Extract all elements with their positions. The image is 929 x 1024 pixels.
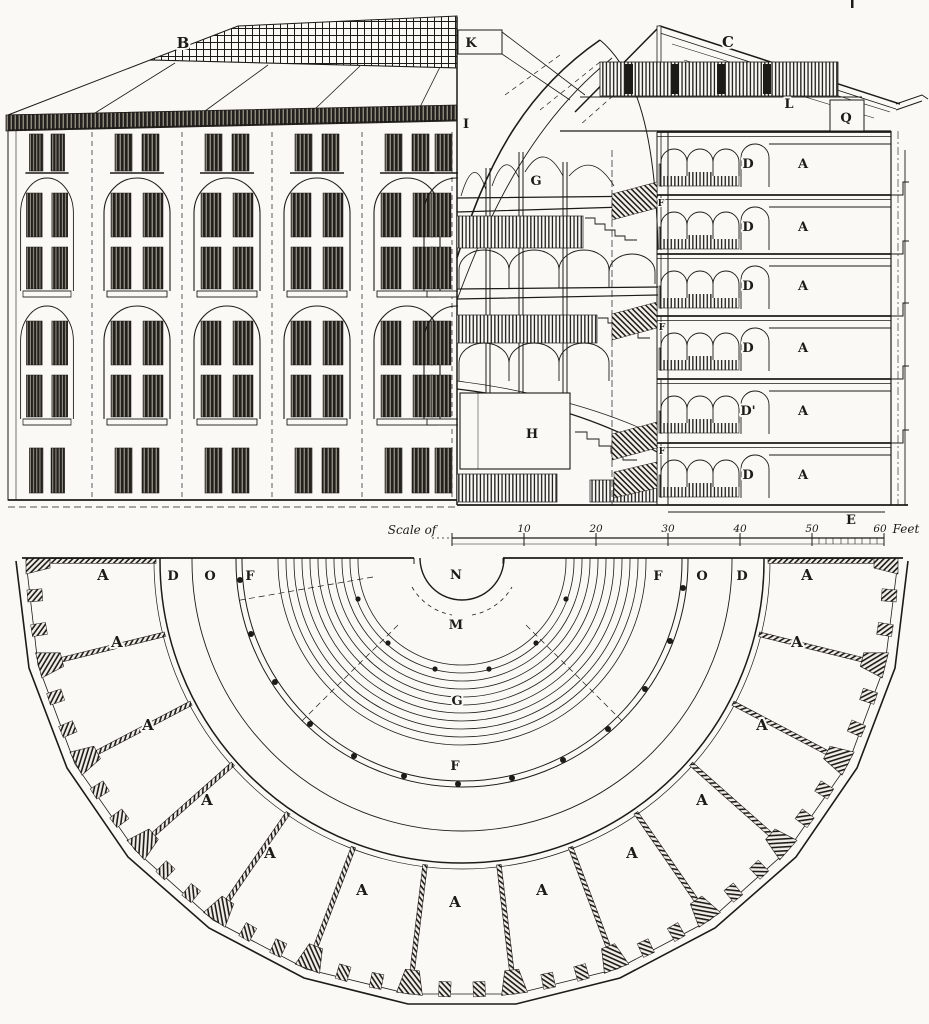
plan-partition — [727, 692, 854, 775]
window-pier — [473, 981, 486, 996]
window-pier — [369, 972, 384, 989]
window-pier — [877, 622, 894, 636]
label-q: Q — [840, 111, 851, 126]
elevation-view — [6, 16, 490, 507]
wall-step — [891, 303, 909, 316]
scale-tick: 40 — [732, 523, 747, 535]
window-pier — [815, 781, 834, 799]
cell-row-a: A — [797, 157, 809, 172]
scale-tick: 30 — [661, 523, 675, 535]
window-pier — [47, 689, 65, 705]
cell-row-d: D — [742, 220, 753, 235]
plan-partition — [625, 805, 720, 927]
cell-row-d: D — [742, 279, 753, 294]
label-l: L — [784, 97, 793, 112]
eave-flick — [896, 95, 928, 110]
label-k: K — [465, 36, 477, 51]
stair-flights — [612, 182, 657, 498]
bay-separators — [92, 132, 452, 498]
wall-step — [891, 366, 909, 379]
cell-row-d: D' — [740, 404, 755, 419]
plan-right-o: O — [696, 569, 707, 584]
label-m: M — [449, 618, 463, 633]
cell-row-d: D — [742, 341, 753, 356]
cell-row-a: A — [797, 279, 809, 294]
plan-cell-a: A — [800, 566, 813, 584]
scale-tick: 20 — [588, 523, 603, 535]
label-f-plan: F — [450, 759, 460, 774]
window-pier — [750, 860, 769, 879]
plan-partition — [36, 622, 168, 678]
plan-cell-a: A — [535, 881, 548, 899]
cell-level — [657, 379, 891, 434]
plan-partition — [558, 843, 628, 974]
cell-level — [657, 443, 891, 498]
stair-label-f: F — [658, 198, 665, 209]
window-pier — [335, 964, 351, 982]
plan-partition — [756, 622, 888, 678]
window-bay — [104, 134, 170, 493]
plan-cell-a: A — [695, 791, 708, 809]
window-pier — [239, 923, 257, 942]
plan-partition — [486, 863, 527, 995]
cell-row-a: A — [797, 220, 809, 235]
window-bay — [21, 134, 74, 493]
label-n: N — [450, 568, 462, 583]
top-line-jogs — [414, 558, 503, 564]
window-pier — [27, 589, 43, 602]
plan-cell-a: A — [790, 633, 803, 651]
page-mark — [851, 0, 854, 8]
facade-outline — [8, 120, 457, 500]
window-bay — [374, 134, 440, 493]
cell-level — [657, 132, 891, 187]
window-pier — [439, 981, 452, 996]
window-bay — [194, 134, 260, 493]
plan-cell-a: A — [355, 881, 368, 899]
scale-tick: 50 — [805, 523, 819, 535]
window-pier — [724, 883, 743, 902]
window-pier — [795, 809, 814, 828]
plan-cell-a: A — [141, 716, 154, 734]
plan-partition — [397, 863, 438, 995]
cell-level — [657, 316, 891, 371]
wall-step — [891, 182, 909, 195]
window-pier — [156, 861, 175, 880]
window-pier — [637, 939, 654, 958]
window-pier — [860, 688, 878, 704]
window-pier — [182, 883, 201, 902]
panopticon-drawing: B K C I L Q G H E D A D A D A D A D' A D… — [0, 0, 929, 1024]
chapel-room — [460, 393, 570, 469]
window-pier — [667, 923, 685, 942]
scale-caption: Scale of — [388, 523, 439, 537]
wall-step — [891, 241, 909, 254]
walkway-column-dots — [237, 577, 686, 787]
plan-cell-a: A — [110, 633, 123, 651]
plan-left-d: D — [167, 569, 178, 584]
plan-partition — [127, 754, 242, 860]
label-g-plan: G — [451, 694, 462, 709]
plan-partition — [70, 692, 197, 775]
plan-cell-a: A — [755, 716, 768, 734]
label-h: H — [526, 427, 538, 442]
label-e: E — [846, 513, 856, 528]
plan-left-o: O — [204, 569, 215, 584]
plan-partition — [295, 843, 365, 974]
stair-label-f: F — [659, 446, 666, 457]
window-pier — [270, 939, 287, 958]
scale-tick: 60 — [873, 523, 887, 535]
plan-right-d: D — [736, 569, 747, 584]
window-bay — [284, 134, 350, 493]
scale-subdivisions — [819, 538, 877, 544]
window-pier — [110, 809, 129, 828]
cell-row-a: A — [797, 341, 809, 356]
cell-row-d: D — [742, 157, 753, 172]
inspectors-lodge-arc — [420, 558, 504, 600]
stair-label-f: F — [659, 322, 666, 333]
window-pier — [881, 589, 897, 602]
label-b: B — [177, 34, 190, 52]
plan-cell-a: A — [96, 566, 109, 584]
plan-cell-a: A — [200, 791, 213, 809]
scale-unit: Feet — [892, 522, 920, 536]
panopticon-plate: B K C I L Q G H E D A D A D A D A D' A D… — [0, 0, 929, 1024]
window-pier — [90, 781, 109, 799]
cell-level — [657, 195, 891, 250]
cell-row-d: D — [742, 468, 753, 483]
cell-level — [657, 254, 891, 309]
label-g-section: G — [530, 174, 541, 189]
label-c: C — [722, 33, 734, 51]
cell-row-a: A — [797, 404, 809, 419]
plan-left-f: F — [245, 569, 255, 584]
label-i: I — [463, 117, 469, 132]
window-pier — [847, 720, 865, 737]
plan-right-f: F — [653, 569, 663, 584]
window-pier — [59, 721, 78, 738]
plan-cell-a: A — [448, 893, 461, 911]
plan-partition — [768, 548, 898, 574]
window-pier — [31, 622, 48, 636]
plan-cell-a: A — [263, 844, 276, 862]
plan-partition — [26, 548, 156, 574]
wall-step — [891, 430, 909, 443]
scale-tick: 10 — [517, 523, 531, 535]
roof-lantern-grid — [150, 16, 457, 68]
cell-row-a: A — [797, 468, 809, 483]
plan-partition — [204, 805, 299, 927]
plan-cell-a: A — [625, 844, 638, 862]
lodge-dashed-arc — [412, 587, 512, 615]
